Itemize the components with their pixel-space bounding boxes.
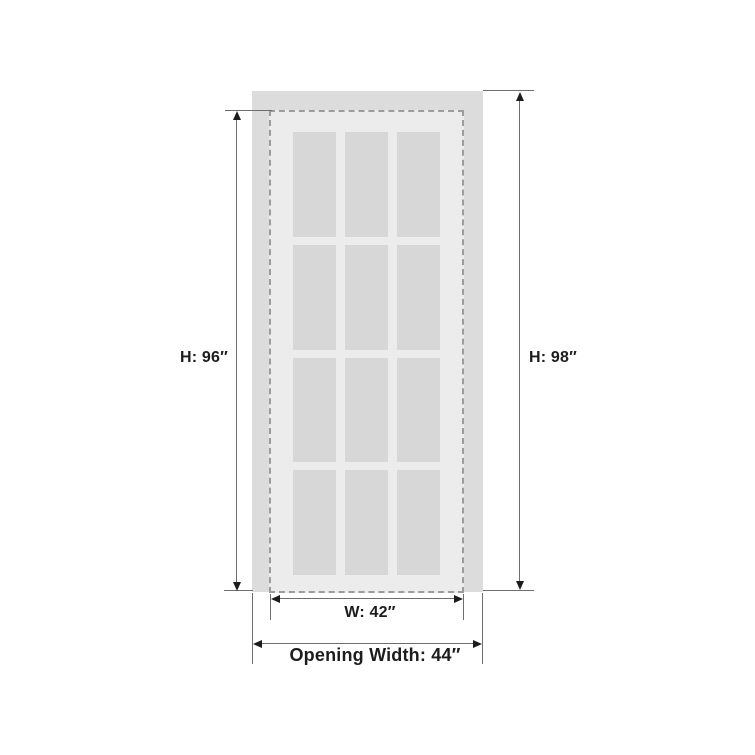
arrow-left-icon — [271, 595, 280, 603]
dimension-line — [236, 113, 237, 588]
glass-pane — [397, 358, 440, 463]
arrow-right-icon — [454, 595, 463, 603]
opening-height-label: H: 98″ — [529, 348, 577, 368]
dimension-line — [519, 94, 520, 587]
glass-pane — [345, 132, 388, 237]
dimension-tick — [483, 90, 534, 91]
glass-pane — [293, 470, 336, 575]
glass-pane-grid — [293, 132, 440, 575]
glass-pane — [293, 132, 336, 237]
glass-pane — [345, 470, 388, 575]
arrow-up-icon — [233, 111, 241, 120]
door-height-label: H: 96″ — [88, 348, 228, 368]
glass-pane — [293, 358, 336, 463]
opening-width-label: Opening Width: 44″ — [250, 645, 500, 665]
arrow-down-icon — [233, 582, 241, 591]
glass-pane — [345, 245, 388, 350]
arrow-up-icon — [516, 92, 524, 101]
glass-pane — [345, 358, 388, 463]
dimension-line — [255, 643, 480, 644]
dimension-tick — [483, 590, 534, 591]
glass-pane — [397, 132, 440, 237]
glass-pane — [397, 470, 440, 575]
arrow-down-icon — [516, 581, 524, 590]
door-width-label: W: 42″ — [270, 603, 470, 623]
dimension-line — [273, 598, 461, 599]
glass-pane — [293, 245, 336, 350]
glass-pane — [397, 245, 440, 350]
door-dimension-diagram: H: 96″ H: 98″ W: 42″ Opening Width: 44″ — [0, 0, 755, 755]
